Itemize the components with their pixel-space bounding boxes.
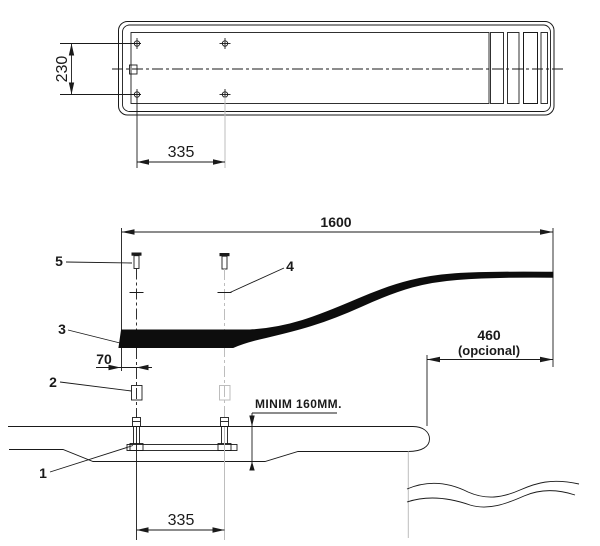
tread-strip (524, 33, 538, 104)
min-embed-label: MINIM 160MM. (255, 397, 342, 411)
bolt-head (132, 253, 142, 256)
anchor-assembly (127, 418, 237, 451)
bolt-shank (222, 256, 227, 269)
arrowhead (540, 357, 553, 363)
dim-70-label: 70 (96, 351, 112, 367)
part-number: 5 (55, 253, 63, 269)
wave-line (407, 491, 575, 507)
leader-line (66, 262, 132, 263)
bolt-head (220, 253, 230, 256)
board-inner-edge (123, 25, 551, 112)
tread-strip (508, 33, 520, 104)
pool-coping-bullnose (408, 427, 429, 452)
dim-460-note: (opcional) (458, 343, 520, 358)
arrowhead (540, 229, 553, 235)
dim-460-label: 460 (477, 327, 501, 343)
dim-1600-label: 1600 (320, 214, 351, 230)
anchor-nut (133, 418, 141, 427)
wave-line (407, 481, 579, 497)
diving-board-drawing: 230 335 1600 (0, 0, 600, 541)
leader-line (230, 268, 284, 293)
part-label-3: 3 (58, 321, 120, 343)
arrowhead (122, 229, 135, 235)
mounting-bolt-front (220, 253, 230, 269)
leader-line (68, 330, 120, 343)
arrowhead (249, 416, 254, 427)
part-number: 4 (286, 258, 294, 274)
arrowhead (69, 44, 74, 56)
technical-drawing-page: 230 335 1600 (0, 0, 600, 541)
dimension-overhang-460: 460 (opcional) (427, 327, 553, 426)
bolt-shank (134, 256, 139, 269)
anchor-nut (221, 418, 229, 427)
arrowhead (137, 365, 149, 370)
part-number: 2 (49, 374, 57, 390)
part-label-1: 1 (39, 446, 133, 482)
pool-deck (8, 427, 413, 462)
tread-strip (541, 33, 548, 104)
arrowhead (69, 83, 74, 95)
arrowhead (249, 462, 254, 471)
side-view: 1600 5 4 3 (8, 214, 579, 540)
tread-strip (491, 33, 504, 104)
bolt-hole (220, 38, 231, 49)
mounting-bolt-rear (132, 253, 142, 269)
tread-strips (491, 33, 548, 104)
top-view: 230 335 (54, 22, 566, 169)
part-label-2: 2 (49, 374, 131, 391)
water-waves (407, 481, 579, 507)
board-top-panel (131, 33, 489, 104)
part-label-4: 4 (230, 258, 294, 293)
dim-335-bottom-label: 335 (168, 512, 195, 529)
arrowhead (427, 357, 440, 363)
part-number: 1 (39, 465, 47, 481)
arrowhead (137, 159, 149, 164)
board-top-outline (119, 22, 555, 116)
part-number: 3 (58, 321, 66, 337)
dimension-bolt-spacing-335-bottom: 335 (137, 427, 225, 540)
arrowhead (137, 527, 149, 532)
dim-335-top-label: 335 (168, 144, 195, 161)
anchor-channel-bar (127, 445, 237, 451)
dimension-min-embed: MINIM 160MM. (249, 397, 342, 471)
dim-230-label: 230 (54, 56, 71, 83)
dimension-bolt-spacing-335-top: 335 (137, 97, 225, 168)
dimension-front-offset-70: 70 (96, 351, 152, 370)
arrowhead (213, 527, 225, 532)
deck-underside-line (9, 450, 408, 462)
part-label-5: 5 (55, 253, 132, 269)
arrowhead (213, 159, 225, 164)
leader-line (60, 382, 132, 391)
